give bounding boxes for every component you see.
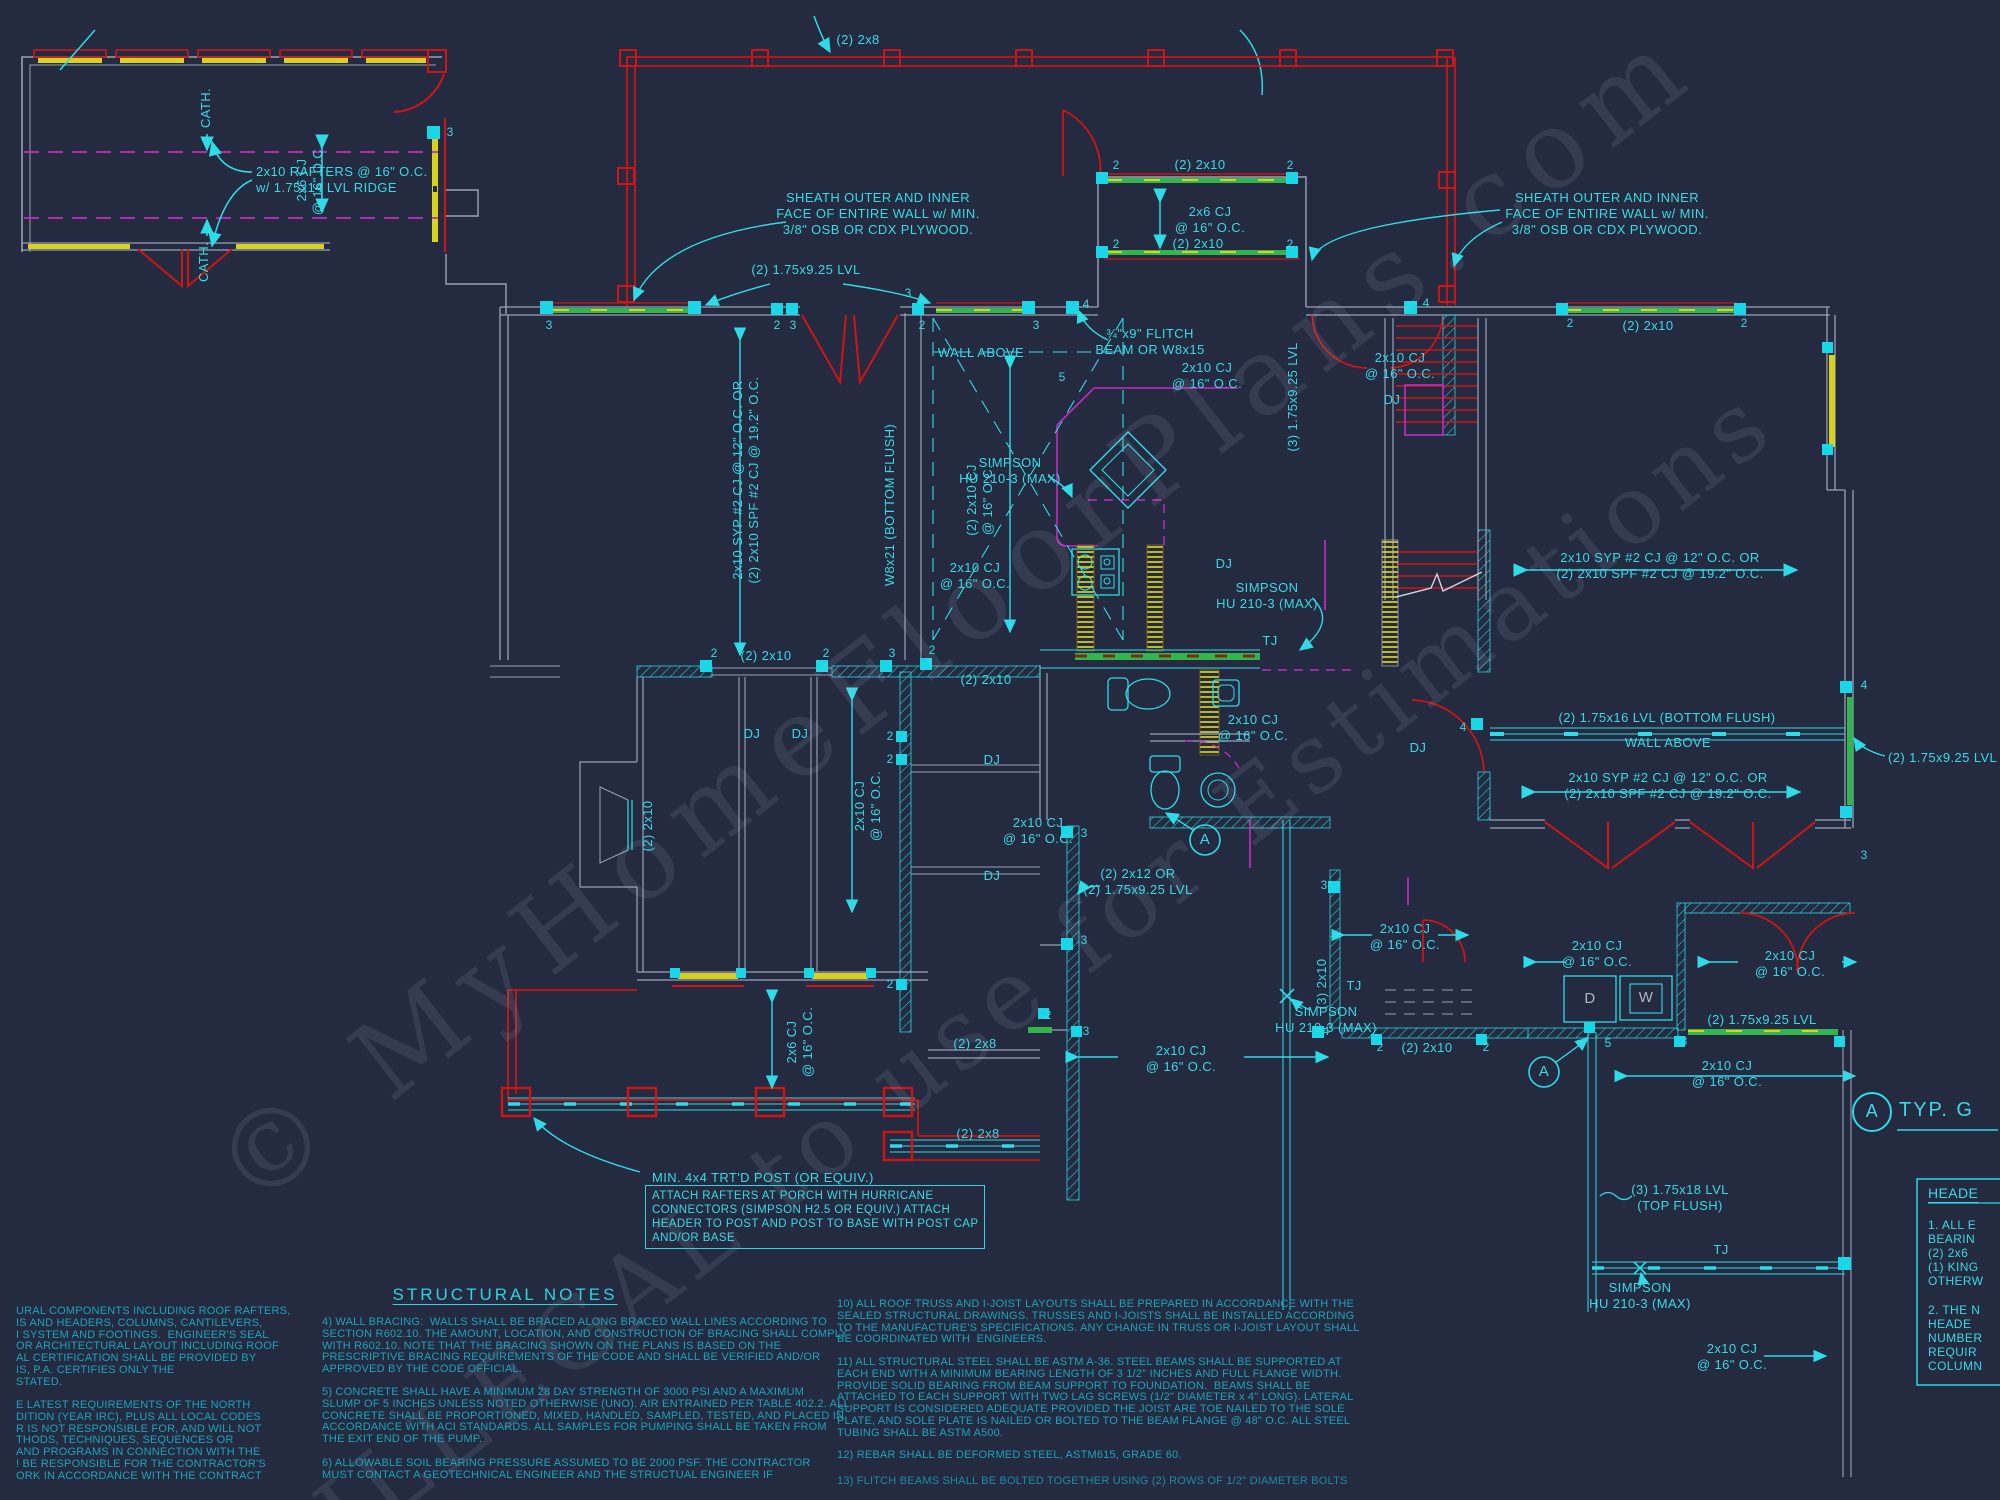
header-label: (2) 2x10 [961,672,1012,688]
dj-label: DJ [1216,556,1233,572]
left-notes-para2: E LATEST REQUIREMENTS OF THE NORTHDITION… [16,1400,266,1483]
header-2x8-top: (2) 2x8 [836,32,879,48]
left-notes-para1: URAL COMPONENTS INCLUDING ROOF RAFTERS,I… [16,1306,290,1389]
joist-label: 2x10 CJ@ 16" O.C. [1003,815,1073,847]
wall-above-label: WALL ABOVE [1625,735,1711,751]
joist-label: 2x10 CJ@ 16" O.C. [1755,948,1825,980]
junction-squares [427,126,1852,1047]
marker: 2 [711,646,718,661]
bay-header-vertical: (2) 2x10 [640,801,656,852]
marker: 2 [1567,316,1574,331]
marker: 3 [1837,1034,1844,1049]
bumpout-header-bottom: (2) 2x10 [1173,236,1224,252]
structural-note-13: 13) FLITCH BEAMS SHALL BE BOLTED TOGETHE… [837,1476,1348,1488]
joist-label: 2x10 CJ@ 16" O.C. [1697,1341,1767,1373]
marker: 3 [790,318,797,333]
marker: 4 [1323,1024,1330,1039]
lower-porch [502,990,1040,1172]
joist-label: 2x10 CJ@ 16" O.C. [1146,1043,1216,1075]
simpson-hanger-note: SIMPSONHU 210-3 (MAX) [1589,1280,1691,1312]
lvl-16-label: (2) 1.75x16 LVL (BOTTOM FLUSH) [1559,710,1776,726]
joist-label: 2x10 CJ@ 16" O.C. [940,560,1010,592]
marker: 2 [823,646,830,661]
marker: 3 [1033,318,1040,333]
marker: 4 [1083,297,1090,312]
tj-label: TJ [1713,1242,1728,1258]
flush-beam-alt-note: (2) 2x12 OR(2) 1.75x9.25 LVL [1083,866,1192,898]
joist-label: 2x10 CJ@ 16" O.C. [1218,712,1288,744]
circled-a-letter: A [1200,831,1210,849]
simpson-hanger-note: SIMPSONHU 210-3 (MAX) [959,455,1061,487]
header-notes-para1: 1. ALL EBEARIN(2) 2x6(1) KINGOTHERW [1928,1218,1984,1288]
rafter-note: 2x10 RAFTERS @ 16" O.C.w/ 1.75x14 LVL RI… [256,164,428,196]
lvl-label-top: (2) 1.75x9.25 LVL [751,262,860,278]
dj-label: DJ [1384,392,1401,408]
header-label: (2) 2x10 [1402,1040,1453,1056]
syp-joist-note-upper: 2x10 SYP #2 CJ @ 12" O.C. OR(2) 2x10 SPF… [1556,550,1763,582]
structural-note-4: 4) WALL BRACING: WALLS SHALL BE BRACED A… [322,1317,848,1376]
marker: 2 [929,643,936,658]
attach-rafters-note: ATTACH RAFTERS AT PORCH WITH HURRICANECO… [645,1185,985,1249]
post-min-note: MIN. 4x4 TRT'D POST (OR EQUIV.) [652,1170,874,1186]
dj-label: DJ [744,726,761,742]
marker: 2 [887,977,894,992]
joist-label: 2x10 CJ@ 16" O.C. [1562,938,1632,970]
syp-joist-note-lower: 2x10 SYP #2 CJ @ 12" O.C. OR(2) 2x10 SPF… [1564,770,1771,802]
dj-label: DJ [792,726,809,742]
marker: 2 [1287,158,1294,173]
bumpout-joist-label: 2x6 CJ@ 16" O.C. [1175,204,1245,236]
porch-step-beam-label: (2) 2x8 [956,1126,999,1142]
circled-a-letter: A [1539,1063,1549,1081]
marker: 2 [1113,237,1120,252]
structural-notes-title: STRUCTURAL NOTES [393,1285,618,1306]
upper-porch-walls [618,16,1455,307]
structural-note-5: 5) CONCRETE SHALL HAVE A MINIMUM 28 DAY … [322,1387,850,1446]
lvl-3ply-vertical: (3) 1.75x9.25 LVL [1285,342,1301,451]
header-notes-title: HEADE [1928,1185,1978,1202]
marker: 2 [887,729,894,744]
marker: 2 [774,318,781,333]
syp-joist-note-vertical: 2x10 SYP #2 CJ @ 12" O.C. OR(2) 2x10 SPF… [730,376,762,583]
three-2x10-vertical: (3) 2x10 [1314,959,1330,1010]
lvl-label-right-edge: (2) 1.75x9.25 LVL [1888,750,1997,766]
structural-note-10: 10) ALL ROOF TRUSS AND I-JOIST LAYOUTS S… [837,1299,1360,1346]
cath-label-top: CATH. [198,88,214,128]
dj-label: DJ [1410,740,1427,756]
dj-label: DJ [984,868,1001,884]
header-notes-para2: 2. THE NHEADENUMBERREQUIRCOLUMN [1928,1303,1982,1373]
joist-label: 2x10 CJ@ 16" O.C. [1370,921,1440,953]
dryer-label: D [1584,990,1595,1008]
joist-label-vertical: 2x10 CJ@ 16" O.C. [852,771,884,841]
bathroom-fixtures [1040,665,1330,828]
wall-above-label: WALL ABOVE [938,345,1024,361]
tj-label: TJ [1262,633,1277,649]
marker: 3 [1083,1024,1090,1039]
structural-note-12: 12) REBAR SHALL BE DEFORMED STEEL, ASTM6… [837,1450,1182,1462]
marker: 3 [447,125,454,140]
marker: 3 [905,286,912,301]
marker: 3 [1321,878,1328,893]
marker: 4 [1460,720,1467,735]
simpson-hanger-note: SIMPSONHU 210-3 (MAX) [1216,580,1318,612]
structural-note-6: 6) ALLOWABLE SOIL BEARING PRESSURE ASSUM… [322,1458,811,1482]
joist-label: 2x10 CJ@ 16" O.C. [1365,350,1435,382]
marker: 3 [1081,826,1088,841]
marker: 2 [1045,1008,1052,1023]
header-label: (2) 2x10 [741,648,792,664]
lvl-label-laundry: (2) 1.75x9.25 LVL [1707,1012,1816,1028]
circled-a-letter-typ: A [1866,1101,1878,1123]
floor-plan-canvas: © MyHomeFloorPlans.com ILLEGAL to use fo… [0,0,2000,1500]
joist-label: 2x10 CJ@ 16" O.C. [1692,1058,1762,1090]
marker: 2 [1741,316,1748,331]
marker: 5 [1605,1036,1612,1051]
marker: 3 [546,318,553,333]
marker: 3 [889,646,896,661]
cath-label-bottom: CATH. [196,242,212,282]
sheathing-note-right: SHEATH OUTER AND INNERFACE OF ENTIRE WAL… [1505,190,1708,238]
marker: 4 [1423,296,1430,311]
tj-label: TJ [1346,978,1361,994]
sheathing-note-left: SHEATH OUTER AND INNERFACE OF ENTIRE WAL… [776,190,979,238]
marker: 4 [1861,678,1868,693]
marker: 2 [1287,237,1294,252]
porch-beam-label: (2) 2x8 [953,1036,996,1052]
w8x21-beam-label: W8x21 (BOTTOM FLUSH) [882,424,898,586]
joist-label: 2x10 CJ@ 16" O.C. [1172,360,1242,392]
marker: 3 [1081,933,1088,948]
porch-joist-vertical: 2x6 CJ@ 16" O.C. [784,1007,816,1077]
center-left-walls [490,313,1123,1032]
marker: 2 [1377,1040,1384,1055]
marker: 2 [887,752,894,767]
marker: 3 [1681,1034,1688,1049]
right-wing-window-header: (2) 2x10 [1623,318,1674,334]
flitch-beam-note: ¾"x9" FLITCHBEAM OR W8x15 [1095,326,1204,358]
marker: 2 [919,318,926,333]
typ-detail-title: TYP. G [1899,1098,1974,1122]
bumpout-header-top: (2) 2x10 [1175,157,1226,173]
marker: 2 [1113,158,1120,173]
lvl-18-note: (3) 1.75x18 LVL(TOP FLUSH) [1631,1182,1729,1214]
marker: 2 [1483,1040,1490,1055]
structural-note-11: 11) ALL STRUCTURAL STEEL SHALL BE ASTM A… [837,1357,1353,1440]
dj-label: DJ [984,752,1001,768]
marker: 5 [1059,370,1066,385]
washer-label: W [1639,989,1654,1007]
marker: 3 [1861,848,1868,863]
